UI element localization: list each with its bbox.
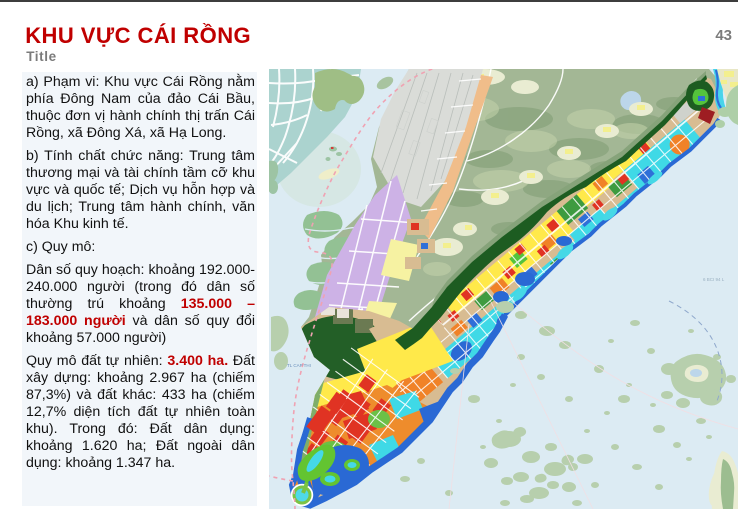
svg-text:TL CAP THI: TL CAP THI xyxy=(287,363,311,368)
svg-text:6 BCI 94 L: 6 BCI 94 L xyxy=(703,277,725,282)
